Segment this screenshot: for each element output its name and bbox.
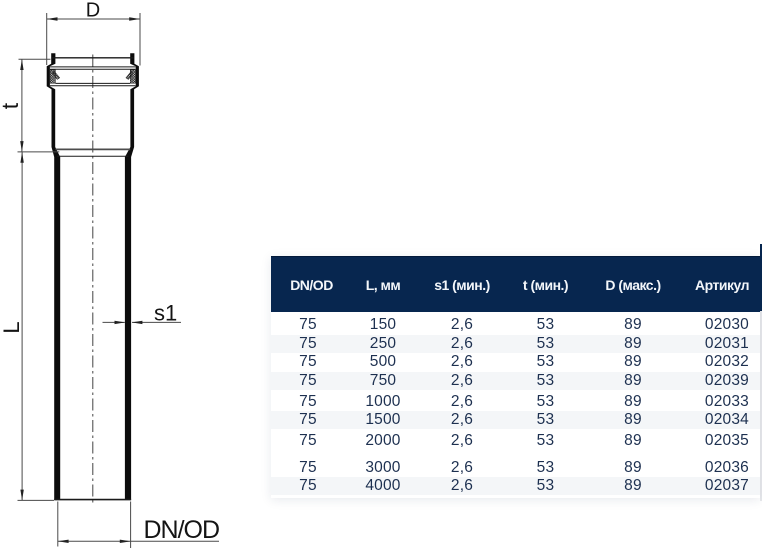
svg-text:D: D	[86, 0, 100, 22]
svg-text:L: L	[0, 321, 24, 333]
svg-text:s1: s1	[154, 300, 177, 325]
svg-text:DN/OD: DN/OD	[144, 516, 220, 544]
svg-text:t: t	[0, 102, 23, 109]
